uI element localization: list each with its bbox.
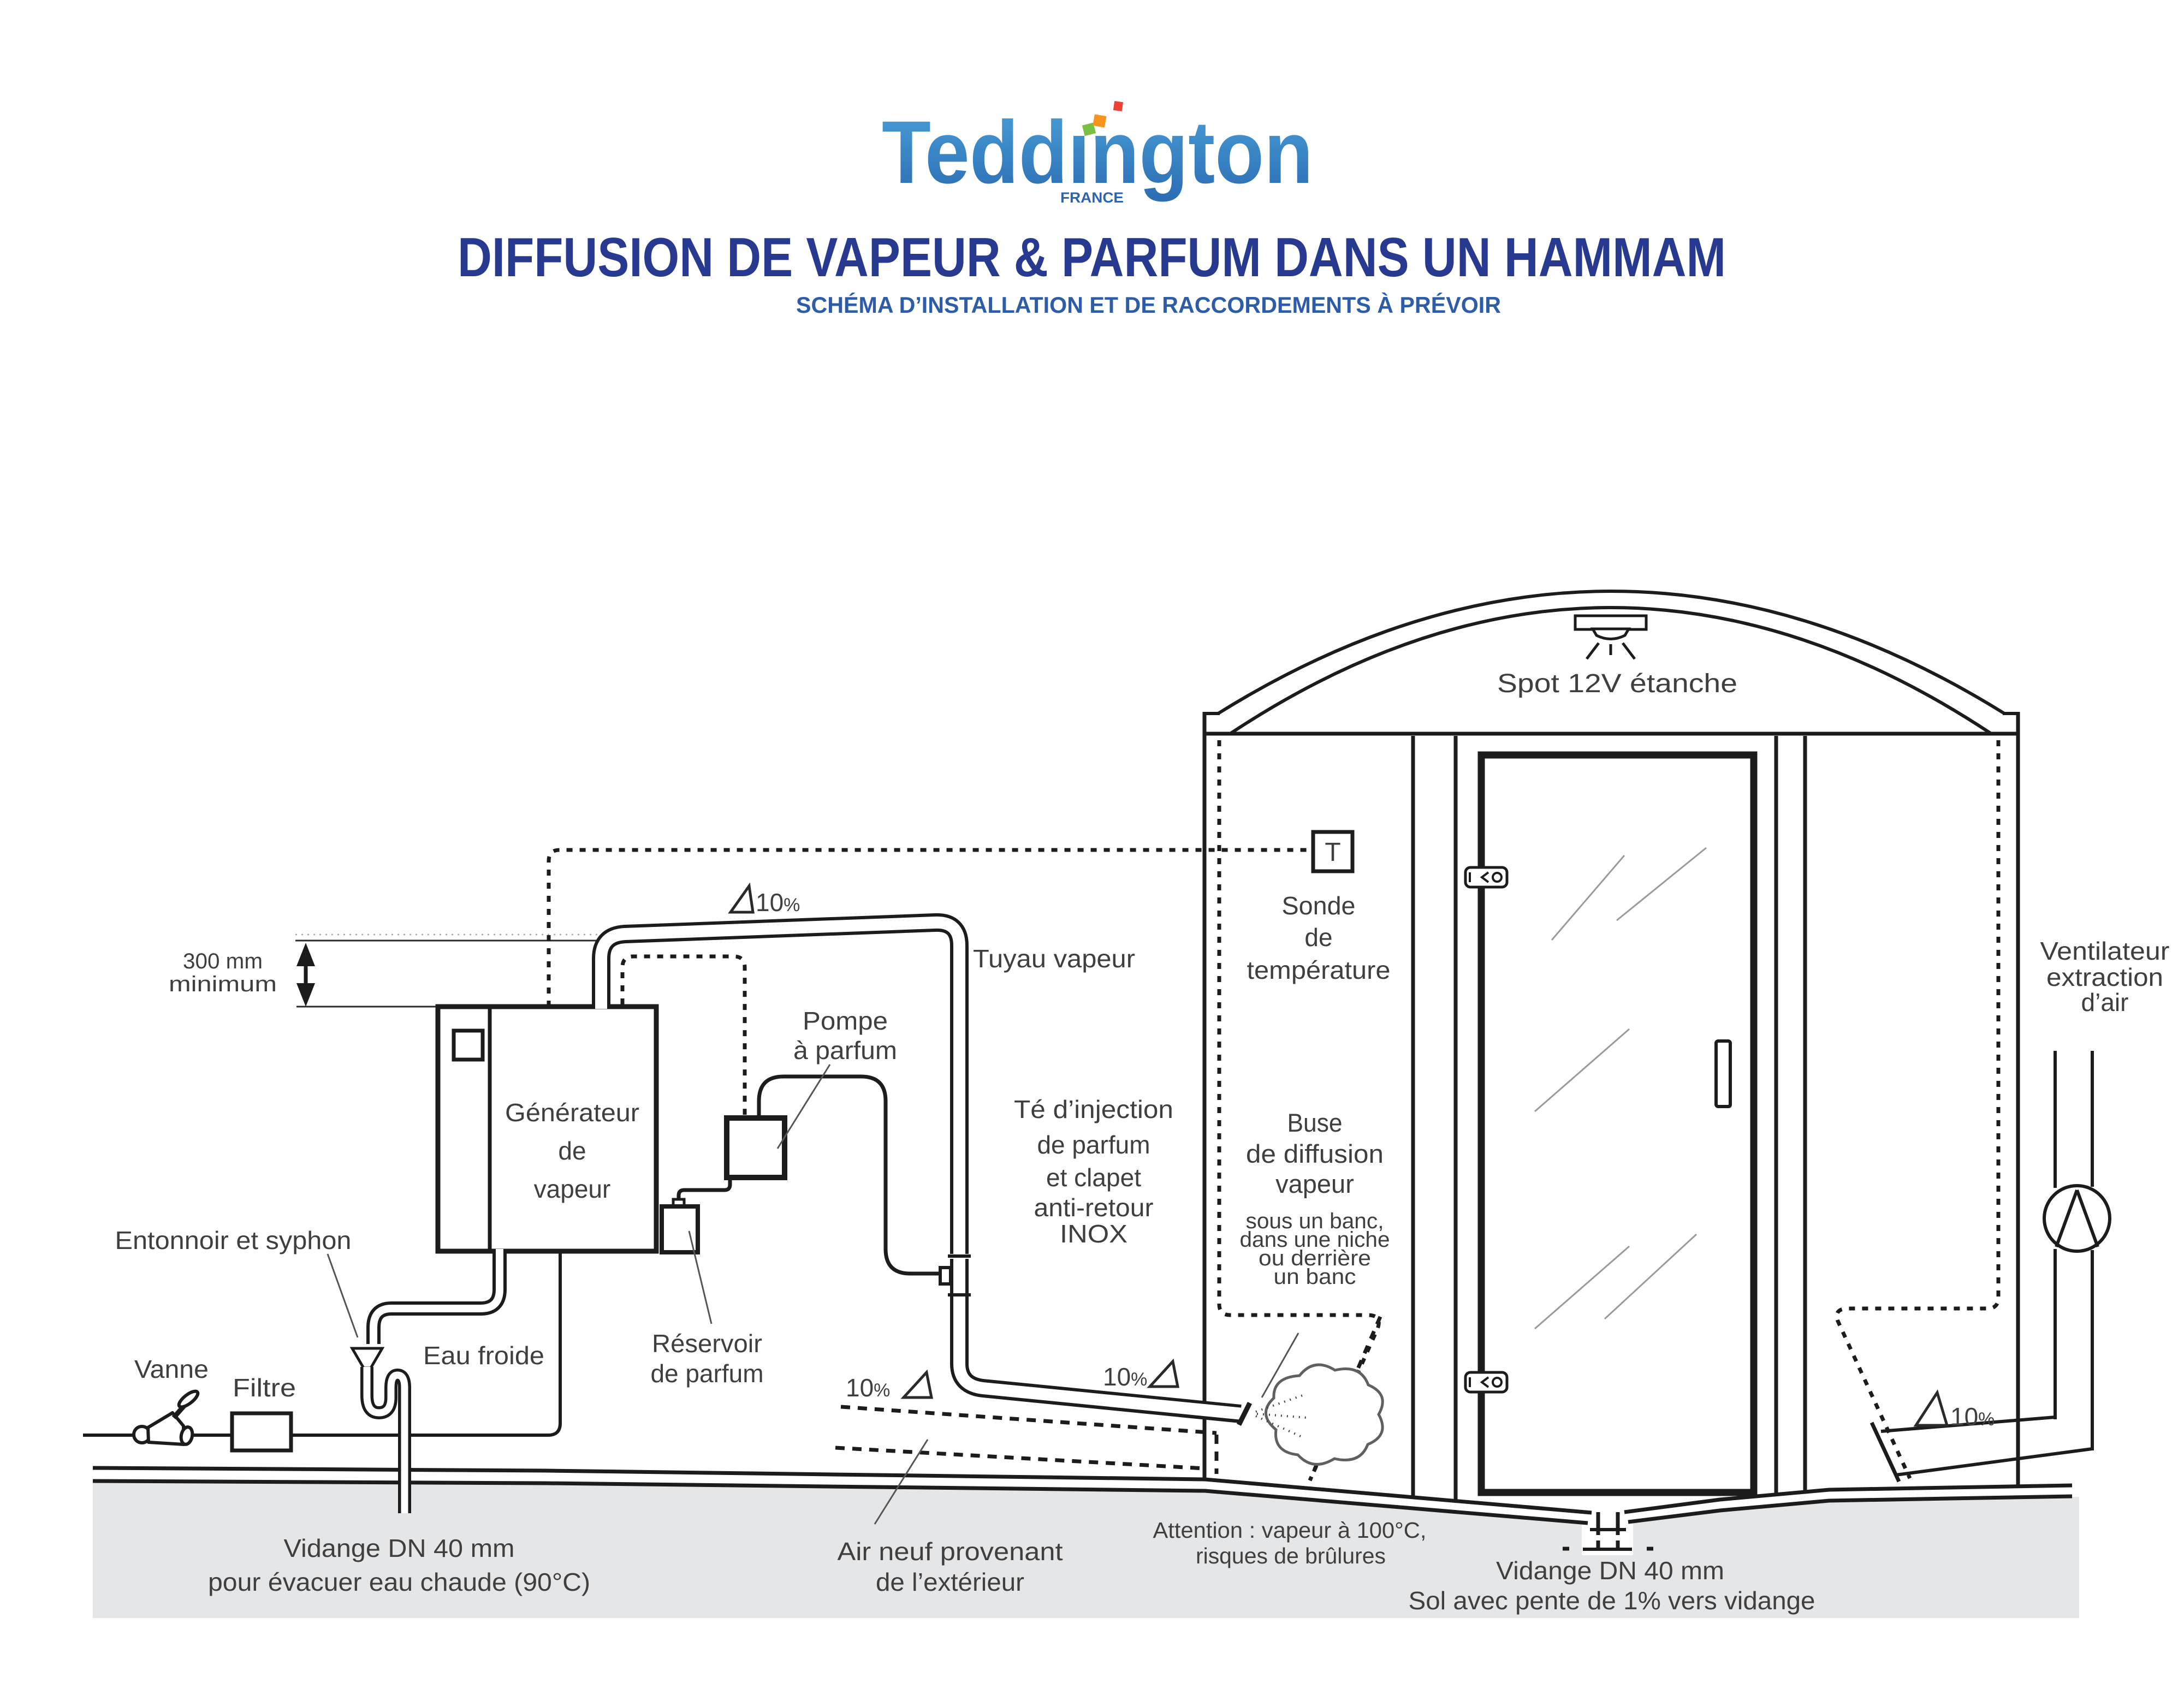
svg-text:de parfum: de parfum bbox=[1037, 1131, 1150, 1159]
svg-text:Tuyau vapeur: Tuyau vapeur bbox=[973, 944, 1135, 973]
svg-text:pour évacuer eau chaude (90°C): pour évacuer eau chaude (90°C) bbox=[208, 1568, 590, 1596]
svg-text:Buse: Buse bbox=[1287, 1108, 1343, 1137]
svg-text:DIFFUSION DE VAPEUR & PARFUM D: DIFFUSION DE VAPEUR & PARFUM DANS UN HAM… bbox=[458, 227, 1726, 288]
svg-text:Sonde: Sonde bbox=[1282, 891, 1356, 920]
svg-text:Air neuf provenant: Air neuf provenant bbox=[838, 1537, 1063, 1566]
svg-text:Attention : vapeur à 100°C,: Attention : vapeur à 100°C, bbox=[1153, 1518, 1427, 1543]
svg-text:Sol avec pente de 1% vers vida: Sol avec pente de 1% vers vidange bbox=[1409, 1586, 1815, 1615]
svg-text:de diffusion: de diffusion bbox=[1246, 1139, 1384, 1168]
svg-text:d’air: d’air bbox=[2081, 988, 2129, 1016]
svg-text:FRANCE: FRANCE bbox=[1060, 189, 1124, 206]
svg-text:vapeur: vapeur bbox=[1275, 1169, 1354, 1198]
svg-text:de: de bbox=[1304, 923, 1332, 951]
svg-text:risques de brûlures: risques de brûlures bbox=[1196, 1543, 1386, 1568]
svg-text:de parfum: de parfum bbox=[650, 1359, 763, 1388]
svg-text:Filtre: Filtre bbox=[233, 1373, 296, 1402]
svg-text:Vidange DN 40 mm: Vidange DN 40 mm bbox=[284, 1534, 515, 1562]
svg-text:300 mm: 300 mm bbox=[183, 949, 263, 973]
svg-text:de l’extérieur: de l’extérieur bbox=[876, 1568, 1024, 1596]
svg-text:Pompe: Pompe bbox=[803, 1007, 888, 1035]
svg-text:température: température bbox=[1247, 956, 1391, 984]
svg-text:SCHÉMA D’INSTALLATION ET DE RA: SCHÉMA D’INSTALLATION ET DE RACCORDEMENT… bbox=[796, 292, 1501, 318]
svg-text:de: de bbox=[558, 1137, 586, 1165]
svg-text:Ventilateur: Ventilateur bbox=[2040, 937, 2170, 965]
svg-text:à parfum: à parfum bbox=[793, 1036, 897, 1064]
svg-text:Té d’injection: Té d’injection bbox=[1014, 1095, 1173, 1123]
svg-text:INOX: INOX bbox=[1060, 1220, 1127, 1248]
svg-text:Vidange DN 40 mm: Vidange DN 40 mm bbox=[1496, 1556, 1724, 1585]
svg-text:T: T bbox=[1325, 838, 1340, 867]
svg-text:Eau froide: Eau froide bbox=[423, 1341, 544, 1370]
svg-text:un banc: un banc bbox=[1274, 1265, 1356, 1289]
svg-text:vapeur: vapeur bbox=[534, 1175, 611, 1203]
svg-text:et clapet: et clapet bbox=[1046, 1163, 1141, 1192]
svg-text:Entonnoir et syphon: Entonnoir et syphon bbox=[115, 1226, 352, 1254]
svg-text:Générateur: Générateur bbox=[505, 1098, 639, 1127]
svg-text:Spot 12V étanche: Spot 12V étanche bbox=[1497, 669, 1737, 698]
svg-text:minimum: minimum bbox=[169, 972, 277, 996]
svg-text:anti-retour: anti-retour bbox=[1034, 1193, 1154, 1222]
svg-text:Vanne: Vanne bbox=[134, 1355, 209, 1383]
svg-text:extraction: extraction bbox=[2046, 963, 2163, 991]
svg-text:Réservoir: Réservoir bbox=[652, 1329, 762, 1358]
